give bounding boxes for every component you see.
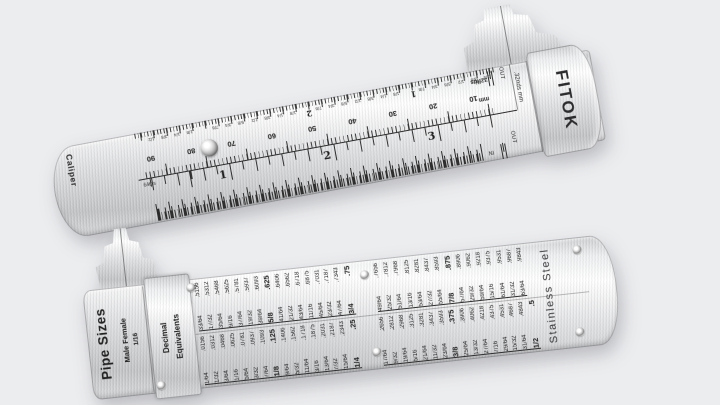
fraction-value: 19/32 [247, 310, 255, 326]
decimal-value: .2343 [339, 321, 347, 337]
fraction-value: 29/32 [469, 285, 477, 301]
equiv-cell: 1/2.5 [528, 300, 541, 349]
decimal-value: .2031 [320, 323, 328, 339]
decimal-value: .8281 [413, 258, 421, 274]
mm-number: 90 [143, 153, 158, 164]
decimal-value: .6562 [284, 272, 292, 288]
label-mm: mm [478, 95, 490, 103]
fraction-value: 25/32 [387, 294, 395, 310]
eighth-fraction-label: 7/8 [313, 105, 324, 112]
fraction-value: 15/32 [512, 335, 520, 351]
equiv-cell: 63/64.9843 [516, 247, 527, 295]
fraction-value: 51/64 [397, 293, 405, 309]
fraction-value: 3/8 [452, 346, 461, 357]
eighth-fraction-label: 3/8 [365, 95, 376, 102]
fraction-value: 1/4 [353, 357, 362, 368]
fraction-value: 47/64 [337, 300, 345, 316]
equiv-cell: 33/64.5156 [194, 282, 205, 330]
rivet [572, 245, 582, 255]
decimal-value: .4687 [508, 302, 516, 318]
eighth-fraction-label: 1/8 [184, 129, 195, 136]
decimal-value: .9218 [475, 252, 483, 268]
fraction-value: 17/64 [382, 349, 390, 365]
decimal-value: .7968 [393, 261, 401, 277]
gauge-body: Pipe Sizes Male Female 1/16 Decimal Equi… [82, 233, 623, 400]
decimal-value: .625 [263, 274, 272, 289]
mm-number: 20 [425, 101, 440, 112]
fraction-value: 21/64 [422, 345, 430, 361]
eighth-fraction-label: 5/8 [442, 81, 453, 88]
fraction-value: 55/64 [437, 289, 445, 305]
fraction-value: 7/16 [493, 341, 500, 353]
eighth-fraction-label: 5/8 [236, 119, 247, 126]
eighth-fraction-label: 3/4 [223, 122, 234, 129]
decimal-value: .1875 [310, 324, 318, 340]
fraction-value: 33/64 [197, 315, 205, 331]
equiv-cell: 5/64.0781 [239, 332, 250, 380]
decimal-value: .4218 [479, 306, 487, 322]
fraction-value: 3/64 [223, 370, 230, 382]
fraction-value: 21/32 [288, 305, 296, 321]
equiv-cell: 19/32.5937 [243, 277, 254, 325]
fraction-value: 43/64 [298, 304, 306, 320]
fraction-value: 7/64 [263, 366, 270, 378]
brand-logo: FITOK [551, 68, 582, 131]
equiv-cell: 3/16.1875 [310, 324, 321, 372]
decimal-value: .5156 [194, 282, 202, 298]
mm-number: 30 [385, 108, 400, 119]
equiv-cell: 59/64.9218 [475, 252, 486, 300]
decimal-value: .2968 [398, 314, 406, 330]
decimal-value: .375 [448, 309, 457, 324]
decimal-value: .7812 [383, 262, 391, 278]
mm-number: 70 [224, 138, 239, 149]
decimal-value: .3437 [428, 311, 436, 327]
caliper-side-label: Caliper [64, 153, 88, 230]
decimal-value: .3593 [438, 310, 446, 326]
decimal-value: .9843 [516, 247, 524, 263]
fraction-value: 23/64 [441, 343, 449, 359]
decimal-value: .0625 [229, 333, 237, 349]
fraction-value: 13/16 [407, 292, 415, 308]
fraction-value: 31/32 [509, 281, 517, 297]
eighth-fraction-label: 1/4 [378, 93, 389, 100]
eighth-fraction-label: 7/8 [417, 86, 428, 93]
decimal-value: .9687 [506, 248, 514, 264]
eighth-fraction-label: 7/8 [210, 124, 221, 131]
decimal-value: .875 [444, 255, 453, 270]
decimal-value: .3906 [459, 308, 467, 324]
equiv-group-1: 1/64.01561/32.03123/64.04681/16.06255/64… [200, 319, 362, 385]
eighth-fraction-label: 1/2 [146, 136, 157, 143]
fraction-value: 27/64 [482, 338, 490, 354]
decimal-value: .2812 [389, 315, 397, 331]
eighth-fraction-label: 3/4 [429, 83, 440, 90]
decimal-value: .3281 [418, 312, 426, 328]
decimal-value: .0937 [249, 330, 257, 346]
fraction-value: 15/16 [489, 283, 497, 299]
decimal-value: .8125 [403, 259, 411, 275]
fraction-value: 5/8 [267, 312, 276, 323]
fraction-value: 23/32 [327, 301, 335, 317]
fraction-value: 29/64 [502, 336, 510, 352]
fraction-value: 1/8 [273, 366, 282, 377]
equiv-cell: 1/64.0156 [200, 336, 211, 384]
in-mark-bottom: IN [488, 149, 495, 156]
decimal-value: .5312 [204, 281, 212, 297]
decimal-value: .8437 [423, 257, 431, 273]
equiv-cell: 49/64.7656 [373, 263, 384, 311]
mm-number: 60 [264, 131, 279, 142]
decimal-value: .5625 [224, 279, 232, 295]
decimal-value: .0156 [200, 336, 208, 352]
fraction-value: 49/64 [376, 296, 384, 312]
equiv-cell: 21/64.3281 [418, 312, 429, 360]
fraction-value: 45/64 [317, 302, 325, 318]
decimal-value: .4375 [489, 304, 497, 320]
decimal-value: .8593 [434, 256, 442, 272]
eighth-fraction-label: 1/8 [287, 110, 298, 117]
inch-number: 3 [424, 129, 438, 144]
equiv-cell: 9/64.1406 [280, 327, 291, 375]
equiv-cell: 37/64.5781 [233, 278, 244, 326]
decimal-value: .125 [269, 328, 278, 343]
mm-number: 50 [304, 123, 319, 134]
decimal-value: .5468 [214, 280, 222, 296]
decimal-value: .1406 [280, 327, 288, 343]
fraction-value: 5/16 [412, 349, 419, 361]
fraction-value: 1/16 [233, 369, 240, 381]
decimal-value: .9375 [486, 250, 494, 266]
decimal-value: .2656 [379, 316, 387, 332]
decimal-value: .4531 [499, 303, 507, 319]
decimal-value: .1718 [300, 325, 308, 341]
fraction-value: 11/64 [303, 358, 311, 373]
equiv-cell: 5/32.1562 [290, 326, 301, 374]
fraction-value: 17/32 [207, 314, 215, 330]
equiv-cell: 53/64.8281 [413, 258, 424, 306]
fraction-value: 13/64 [323, 356, 331, 372]
fraction-value: 19/64 [402, 347, 410, 363]
decimal-value: .5 [528, 300, 536, 307]
decimal-value: .5781 [233, 278, 241, 294]
decimal-value: .75 [343, 266, 352, 277]
decimal-value: .3125 [408, 313, 416, 329]
equiv-cell: 17/32.5312 [204, 281, 215, 329]
equiv-cell: 25/32.7812 [383, 262, 394, 310]
equiv-cell: 3/64.0468 [219, 334, 230, 382]
eighth-fraction-label: 1/2 [249, 117, 260, 124]
equiv-cell: 27/64.4218 [479, 306, 490, 354]
eighth-fraction-label: 1/4 [171, 131, 182, 138]
fraction-value: 15/64 [343, 353, 351, 369]
jaw-seam-line [500, 6, 512, 66]
fraction-value: 37/64 [237, 311, 245, 327]
equiv-cell: 7/8.875 [444, 255, 457, 304]
fraction-value: 9/16 [227, 315, 234, 327]
fraction-value: 31/64 [522, 334, 530, 350]
rivet [575, 327, 585, 337]
equiv-cell: 27/32.8437 [423, 257, 434, 305]
decimal-value: .25 [349, 319, 358, 330]
mm-number: 80 [184, 146, 199, 157]
fraction-value: 5/64 [243, 368, 250, 380]
equiv-cell: 11/32.3437 [428, 311, 439, 359]
eighth-fraction-label: 1/2 [455, 79, 466, 86]
decimal-value: .1562 [290, 326, 298, 342]
decimal-value: .7031 [314, 269, 322, 285]
fraction-value: 7/32 [333, 358, 340, 370]
fraction-value: 35/64 [217, 313, 225, 329]
equiv-cell: 43/64.6718 [294, 271, 305, 319]
equiv-cell: 3/32.0937 [249, 330, 260, 378]
equiv-cell: 57/64.8906 [455, 254, 466, 302]
fraction-value: 9/64 [284, 363, 291, 375]
mm-number: 40 [345, 116, 360, 127]
fraction-value: 3/32 [253, 367, 260, 379]
equiv-cell: 31/32.9687 [506, 248, 517, 296]
equiv-cell: 25/64.3906 [459, 308, 470, 356]
decimal-value: .7187 [324, 268, 332, 284]
fraction-value: 7/8 [448, 292, 457, 303]
fraction-value: 27/32 [427, 290, 435, 306]
equiv-cell: 7/16.4375 [489, 304, 500, 352]
fraction-value: 11/32 [432, 344, 440, 359]
fraction-value: 59/64 [479, 284, 487, 300]
decimal-value: .6406 [274, 273, 282, 289]
equiv-cell: 13/16.8125 [403, 259, 414, 307]
equiv-cell: 1/8.125 [269, 328, 282, 377]
decimal-value: .6093 [253, 276, 261, 292]
equiv-cell: 41/64.6406 [274, 273, 285, 321]
decimal-value: .5937 [243, 277, 251, 293]
inch-number: 2 [320, 148, 334, 163]
decimal-value: .4062 [469, 307, 477, 323]
fraction-value: 3/4 [347, 303, 356, 314]
inch-number: 1 [216, 167, 230, 182]
equiv-cell: 51/64.7968 [393, 261, 404, 309]
in-mark-top: IN [475, 78, 482, 85]
fraction-value: 61/64 [499, 282, 507, 298]
gauge-title: Pipe Sizes [90, 290, 116, 397]
equiv-cell: 19/64.2968 [398, 314, 409, 362]
equiv-cell: 17/64.2656 [379, 316, 390, 364]
decimal-value: .0781 [239, 332, 247, 348]
scene: Caliper 908070605040302010 21 1/23/81/41… [0, 0, 720, 405]
equiv-cell: 1/32.0312 [210, 335, 221, 383]
decimal-value: .0312 [210, 335, 218, 351]
eighth-fraction-label: 5/8 [339, 100, 350, 107]
decimal-value: .6875 [304, 270, 312, 286]
fraction-value: 5/32 [294, 362, 301, 374]
decimal-value: .6718 [294, 271, 302, 287]
equiv-cell: 9/32.2812 [389, 315, 400, 363]
decimal-value: .0468 [219, 334, 227, 350]
eighth-fraction-label: 3/8 [158, 134, 169, 141]
decimal-value: .7343 [334, 267, 342, 283]
fraction-value: 1/32 [214, 371, 221, 383]
equiv-cell: 15/16.9375 [486, 250, 497, 298]
eighth-fraction-label: 1/8 [391, 91, 402, 98]
equiv-cell: 1/16.0625 [229, 333, 240, 381]
equiv-cell: 5/8.625 [263, 274, 276, 323]
equiv-cell: 35/64.5468 [214, 280, 225, 328]
decimal-value: .9062 [465, 253, 473, 269]
fraction-value: 13/32 [473, 339, 481, 355]
fraction-value: 25/64 [463, 340, 471, 356]
eighth-fraction-label: 1/2 [352, 98, 363, 105]
equiv-cell: 5/16.3125 [408, 313, 419, 361]
fraction-value: 3/16 [314, 360, 321, 372]
decimal-equivalents-table: 33/64.515617/32.531235/64.54689/16.56253… [193, 242, 547, 389]
decimal-value: .8906 [455, 254, 463, 270]
fraction-value: 39/64 [257, 309, 265, 325]
equiv-cell: 9/16.5625 [224, 279, 235, 327]
eighth-fraction-label: 3/4 [326, 103, 337, 110]
equiv-cell: 13/32.4062 [469, 307, 480, 355]
decimal-value: .2187 [329, 322, 337, 338]
equiv-group-2: 17/64.26569/32.281219/64.29685/16.312521… [379, 300, 541, 366]
equiv-cell: 1/4.25 [349, 319, 362, 368]
jaw-seam-line [120, 228, 127, 288]
equiv-cell: 21/32.6562 [284, 272, 295, 320]
fraction-value: 1/2 [532, 337, 541, 348]
decimal-value: .4843 [518, 301, 526, 317]
eighth-fraction-label: 3/8 [262, 114, 273, 121]
decimal-value: .9531 [496, 249, 504, 265]
fraction-value: 63/64 [519, 280, 527, 296]
equiv-cell: 3/4.75 [343, 266, 356, 315]
equiv-cell: 11/16.6875 [304, 270, 315, 318]
fraction-value: 41/64 [278, 306, 286, 322]
equiv-cell: 61/64.9531 [496, 249, 507, 297]
decimal-value: .1093 [259, 329, 267, 345]
table-header: Decimal Equivalents [157, 313, 187, 360]
decimal-value: .7656 [373, 263, 381, 279]
eighth-fraction-label: 1/4 [275, 112, 286, 119]
fraction-value: 11/16 [308, 303, 316, 318]
fraction-value: 57/64 [459, 287, 467, 303]
equiv-cell: 11/64.1718 [300, 325, 311, 373]
fraction-value: 9/32 [392, 351, 399, 363]
fraction-value: 1/64 [204, 372, 211, 384]
fraction-value: 53/64 [417, 291, 425, 307]
equiv-cell: 3/8.375 [448, 309, 461, 358]
equiv-cell: 29/32.9062 [465, 253, 476, 301]
